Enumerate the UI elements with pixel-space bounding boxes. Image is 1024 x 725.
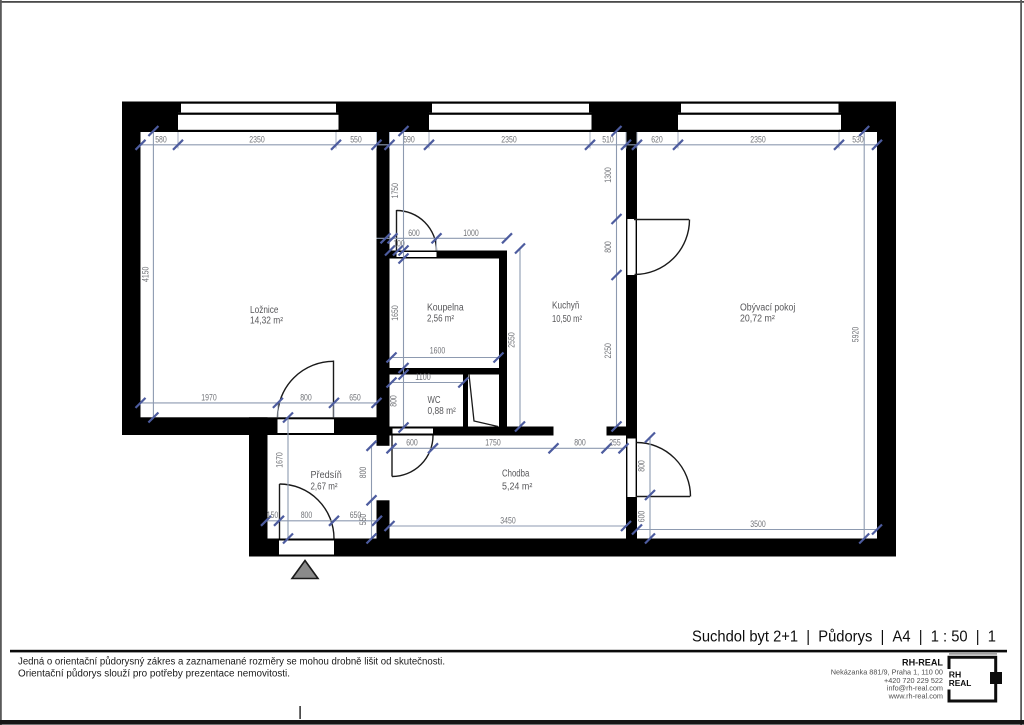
svg-text:255: 255 xyxy=(609,437,621,447)
svg-text:1750: 1750 xyxy=(485,437,500,447)
svg-text:2,67 m²: 2,67 m² xyxy=(311,482,339,493)
svg-text:Suchdol byt 2+1 | Půdorys |: Suchdol byt 2+1 | Půdorys | A4 | 1 : 50 … xyxy=(692,629,996,646)
svg-text:1750: 1750 xyxy=(390,183,400,198)
svg-text:800: 800 xyxy=(358,467,368,479)
svg-text:1670: 1670 xyxy=(275,452,285,467)
svg-text:1300: 1300 xyxy=(603,167,613,182)
svg-text:1600: 1600 xyxy=(430,346,445,356)
svg-text:3450: 3450 xyxy=(500,516,515,526)
svg-text:Předsíň: Předsíň xyxy=(311,470,342,481)
svg-text:600: 600 xyxy=(406,437,418,447)
svg-text:WC: WC xyxy=(428,395,441,406)
svg-text:2,56 m²: 2,56 m² xyxy=(427,314,455,325)
svg-text:1970: 1970 xyxy=(201,392,216,402)
svg-text:550: 550 xyxy=(358,514,368,526)
svg-text:2350: 2350 xyxy=(750,134,765,144)
svg-text:650: 650 xyxy=(349,392,361,402)
svg-text:Ložnice: Ložnice xyxy=(250,305,279,316)
svg-text:REAL: REAL xyxy=(949,678,972,688)
svg-text:620: 620 xyxy=(651,134,663,144)
svg-text:600: 600 xyxy=(637,511,647,523)
svg-text:Chodba: Chodba xyxy=(502,469,530,480)
svg-text:3500: 3500 xyxy=(750,519,765,529)
svg-text:Orientační půdorys slouží pro: Orientační půdorys slouží pro potřeby pr… xyxy=(18,668,290,680)
svg-text:2350: 2350 xyxy=(249,134,264,144)
svg-text:800: 800 xyxy=(574,437,586,447)
svg-text:150: 150 xyxy=(267,510,279,520)
svg-text:550: 550 xyxy=(350,134,362,144)
svg-text:590: 590 xyxy=(403,134,415,144)
svg-text:Kuchyň: Kuchyň xyxy=(552,301,580,312)
svg-text:800: 800 xyxy=(301,510,313,520)
svg-text:800: 800 xyxy=(300,392,312,402)
svg-text:530: 530 xyxy=(852,134,864,144)
svg-text:5,24 m²: 5,24 m² xyxy=(502,482,533,493)
svg-text:4150: 4150 xyxy=(141,267,151,282)
svg-text:580: 580 xyxy=(155,134,167,144)
svg-text:1650: 1650 xyxy=(390,305,400,320)
svg-text:600: 600 xyxy=(408,228,420,238)
svg-text:www.rh-real.com: www.rh-real.com xyxy=(888,691,943,700)
svg-text:2550: 2550 xyxy=(507,332,517,347)
svg-text:1100: 1100 xyxy=(415,372,430,382)
svg-text:2250: 2250 xyxy=(603,343,613,358)
svg-text:Jedná o orientační půdorysný z: Jedná o orientační půdorysný zákres a za… xyxy=(18,656,445,668)
svg-text:800: 800 xyxy=(603,241,613,253)
svg-text:800: 800 xyxy=(637,460,647,472)
svg-text:2350: 2350 xyxy=(501,134,516,144)
svg-text:0,88 m²: 0,88 m² xyxy=(428,406,457,417)
svg-text:800: 800 xyxy=(389,395,399,407)
svg-text:5920: 5920 xyxy=(850,327,860,342)
svg-text:14,32 m²: 14,32 m² xyxy=(250,316,284,327)
svg-text:10,50 m²: 10,50 m² xyxy=(552,314,583,325)
svg-text:Obývací pokoj: Obývací pokoj xyxy=(740,302,795,313)
svg-text:1000: 1000 xyxy=(463,228,478,238)
svg-text:Koupelna: Koupelna xyxy=(427,303,464,314)
svg-text:20,72 m²: 20,72 m² xyxy=(740,314,775,325)
